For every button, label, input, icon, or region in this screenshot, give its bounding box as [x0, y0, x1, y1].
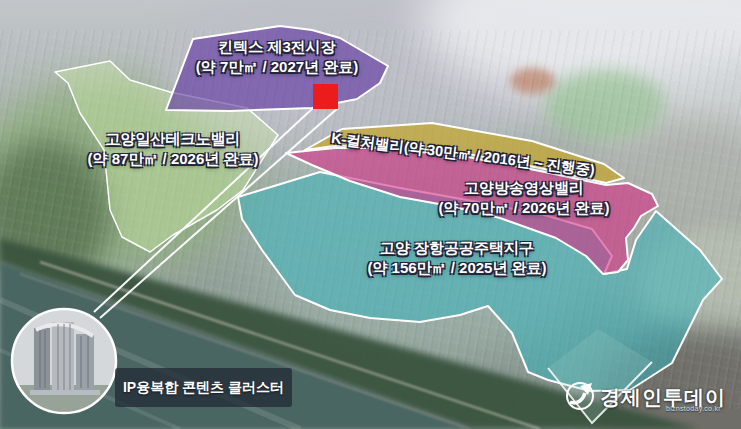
label-janghang-detail: (약 156만㎡ / 2025년 완료)	[367, 258, 546, 278]
label-janghang-housing: 고양 장항공공주택지구 (약 156만㎡ / 2025년 완료)	[367, 238, 546, 278]
aerial-map-image: 킨텍스 제3전시장 (약 7만㎡ / 2027년 완료) 고양일산테크노밸리 (…	[0, 0, 741, 429]
label-kintex: 킨텍스 제3전시장 (약 7만㎡ / 2027년 완료)	[196, 37, 359, 77]
map-overlay-graphics	[0, 0, 741, 429]
building-illustration	[34, 328, 50, 390]
label-kintex-detail: (약 7만㎡ / 2027년 완료)	[196, 57, 359, 77]
label-techno-title: 고양일산테크노밸리	[88, 129, 259, 149]
label-broadcast-valley: 고양방송영상밸리 (약 70만㎡ / 2026년 완료)	[439, 178, 610, 218]
label-broadcast-detail: (약 70만㎡ / 2026년 완료)	[439, 198, 610, 218]
marker-ip-cluster-site	[313, 84, 338, 109]
label-techno-detail: (약 87만㎡ / 2026년 완료)	[88, 149, 259, 169]
watermark-url: biznstoday.co.kr	[666, 405, 721, 412]
label-ilsan-techno-valley: 고양일산테크노밸리 (약 87만㎡ / 2026년 완료)	[88, 129, 259, 169]
label-kintex-title: 킨텍스 제3전시장	[196, 37, 359, 57]
label-broadcast-title: 고양방송영상밸리	[439, 178, 610, 198]
label-janghang-title: 고양 장항공공주택지구	[367, 238, 546, 258]
inset-circle-photo	[12, 309, 116, 415]
inset-label: IP융복합 콘텐츠 클러스터	[115, 368, 292, 407]
